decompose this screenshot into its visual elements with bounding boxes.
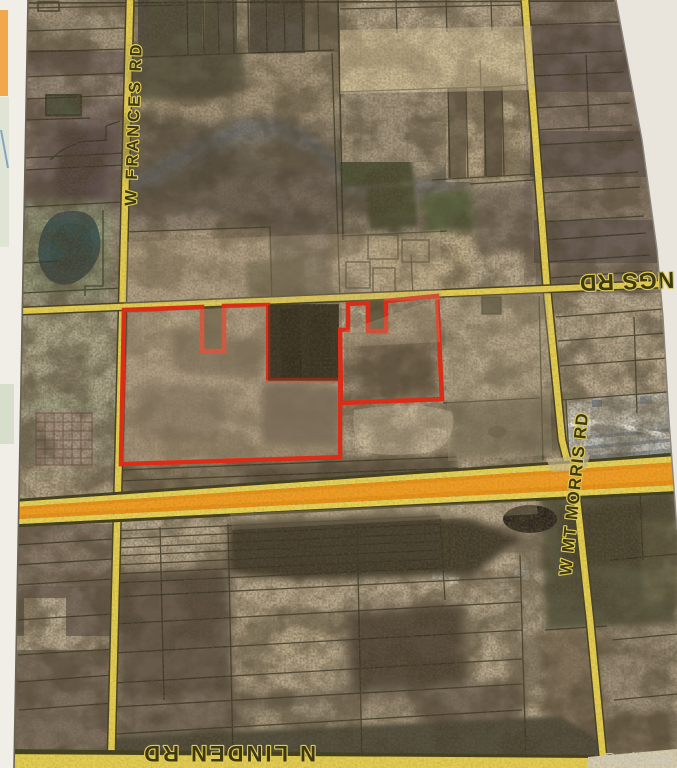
svg-text:N LINDEN RD: N LINDEN RD bbox=[141, 741, 316, 766]
svg-text:Realcomp: Realcomp bbox=[605, 751, 670, 767]
